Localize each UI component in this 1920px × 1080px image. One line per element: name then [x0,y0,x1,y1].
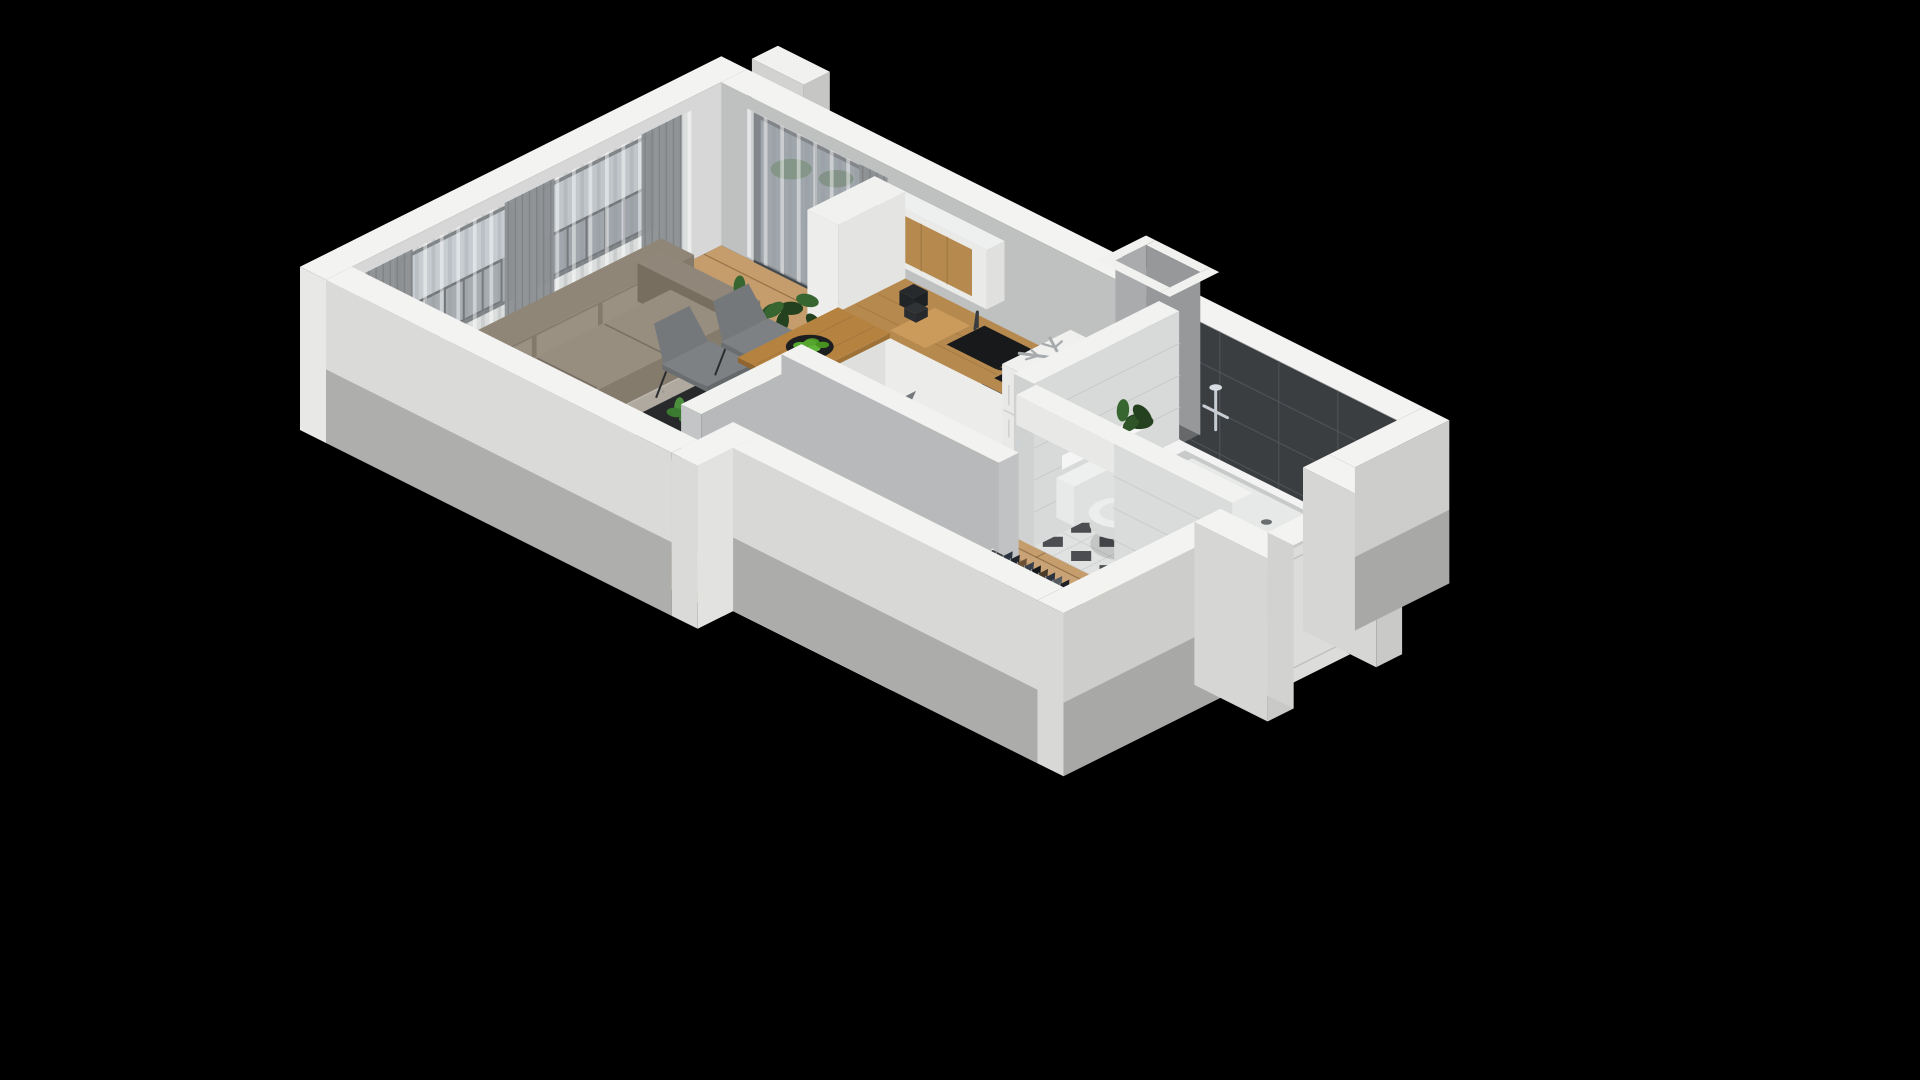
bathtub-drain [1261,519,1272,525]
apple [803,340,816,346]
apartment-3d-floor-plan [0,0,1920,1080]
shower-handset [1209,384,1222,390]
floor-plan-stage [0,0,1920,1080]
apple [816,342,829,348]
